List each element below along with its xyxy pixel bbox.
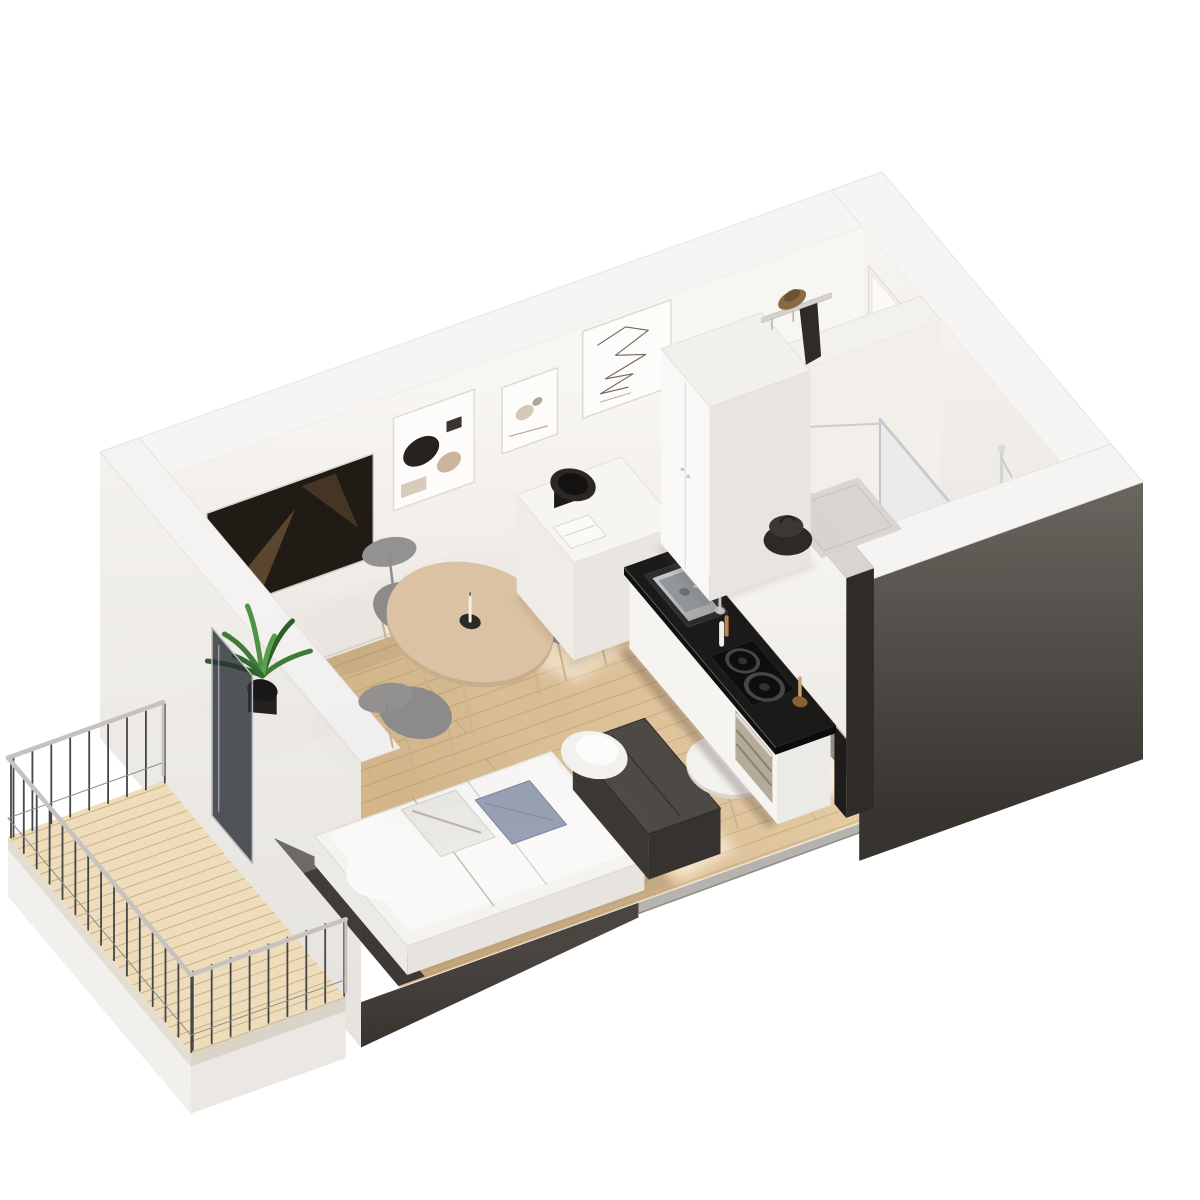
floorplan-3d-render <box>0 0 1200 1200</box>
floorplan-stage <box>0 0 1200 1200</box>
wardrobe <box>655 313 817 607</box>
